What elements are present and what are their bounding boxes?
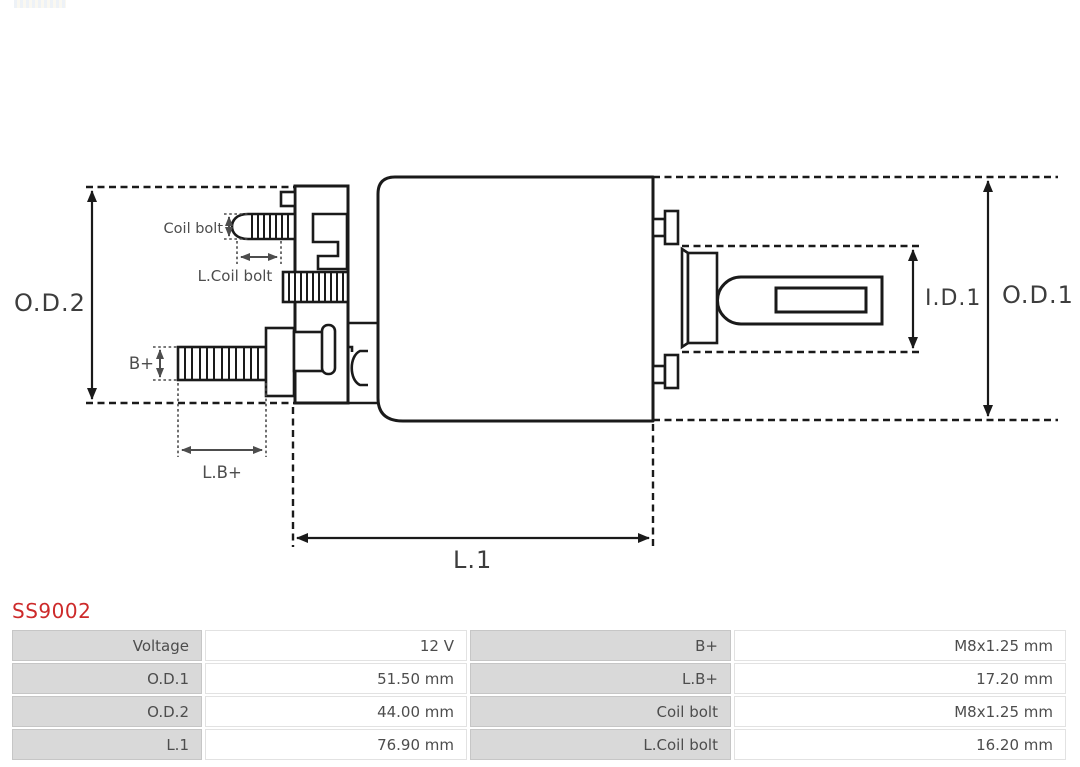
l1-label: L.1 <box>453 546 492 574</box>
coil-bolt-thread-block <box>283 272 348 302</box>
spec-value: M8x1.25 mm <box>734 630 1066 661</box>
solenoid-body-outline <box>378 177 653 421</box>
spec-label: L.B+ <box>470 663 731 694</box>
bracket-hook <box>352 351 368 385</box>
solenoid-diagram: O.D.2 O.D.1 I.D.1 L.1 Coil bolt L.Coil b… <box>0 0 1080 595</box>
spec-value: 17.20 mm <box>734 663 1066 694</box>
id1-label: I.D.1 <box>925 286 981 311</box>
spec-label: O.D.1 <box>12 663 202 694</box>
spec-table: Voltage 12 V B+ M8x1.25 mm O.D.1 51.50 m… <box>12 630 1066 760</box>
spec-value: 51.50 mm <box>205 663 467 694</box>
spec-label: O.D.2 <box>12 696 202 727</box>
product-spec-page: { "page": { "background": "#ffffff" }, "… <box>0 0 1080 767</box>
od1-label: O.D.1 <box>1002 281 1074 309</box>
od2-label: O.D.2 <box>14 289 86 317</box>
solenoid-body <box>378 177 653 421</box>
rear-terminals <box>653 211 678 388</box>
plunger-slot <box>776 288 866 312</box>
dotted-guides <box>153 214 281 457</box>
spec-label: Coil bolt <box>470 696 731 727</box>
flange-cutout <box>313 214 347 269</box>
b-plus-nut <box>266 328 294 396</box>
spec-value: 12 V <box>205 630 467 661</box>
product-code: SS9002 <box>12 599 91 623</box>
l-b-plus-label: L.B+ <box>202 463 242 482</box>
l-coil-bolt-label: L.Coil bolt <box>198 267 273 285</box>
b-plus-label: B+ <box>129 354 154 373</box>
plunger-shaft <box>682 249 882 347</box>
b-plus-boss <box>294 332 324 371</box>
spec-value: 16.20 mm <box>734 729 1066 760</box>
coil-bolt-stud <box>232 214 295 239</box>
flange-ear <box>281 192 295 206</box>
spec-value: 44.00 mm <box>205 696 467 727</box>
spec-value: M8x1.25 mm <box>734 696 1066 727</box>
spec-label: L.1 <box>12 729 202 760</box>
coil-bolt-label: Coil bolt <box>164 221 224 237</box>
solenoid-technical-drawing: O.D.2 O.D.1 I.D.1 L.1 Coil bolt L.Coil b… <box>0 0 1080 595</box>
spec-value: 76.90 mm <box>205 729 467 760</box>
spec-label: L.Coil bolt <box>470 729 731 760</box>
b-plus-washer <box>322 325 335 374</box>
spec-label: Voltage <box>12 630 202 661</box>
spec-label: B+ <box>470 630 731 661</box>
